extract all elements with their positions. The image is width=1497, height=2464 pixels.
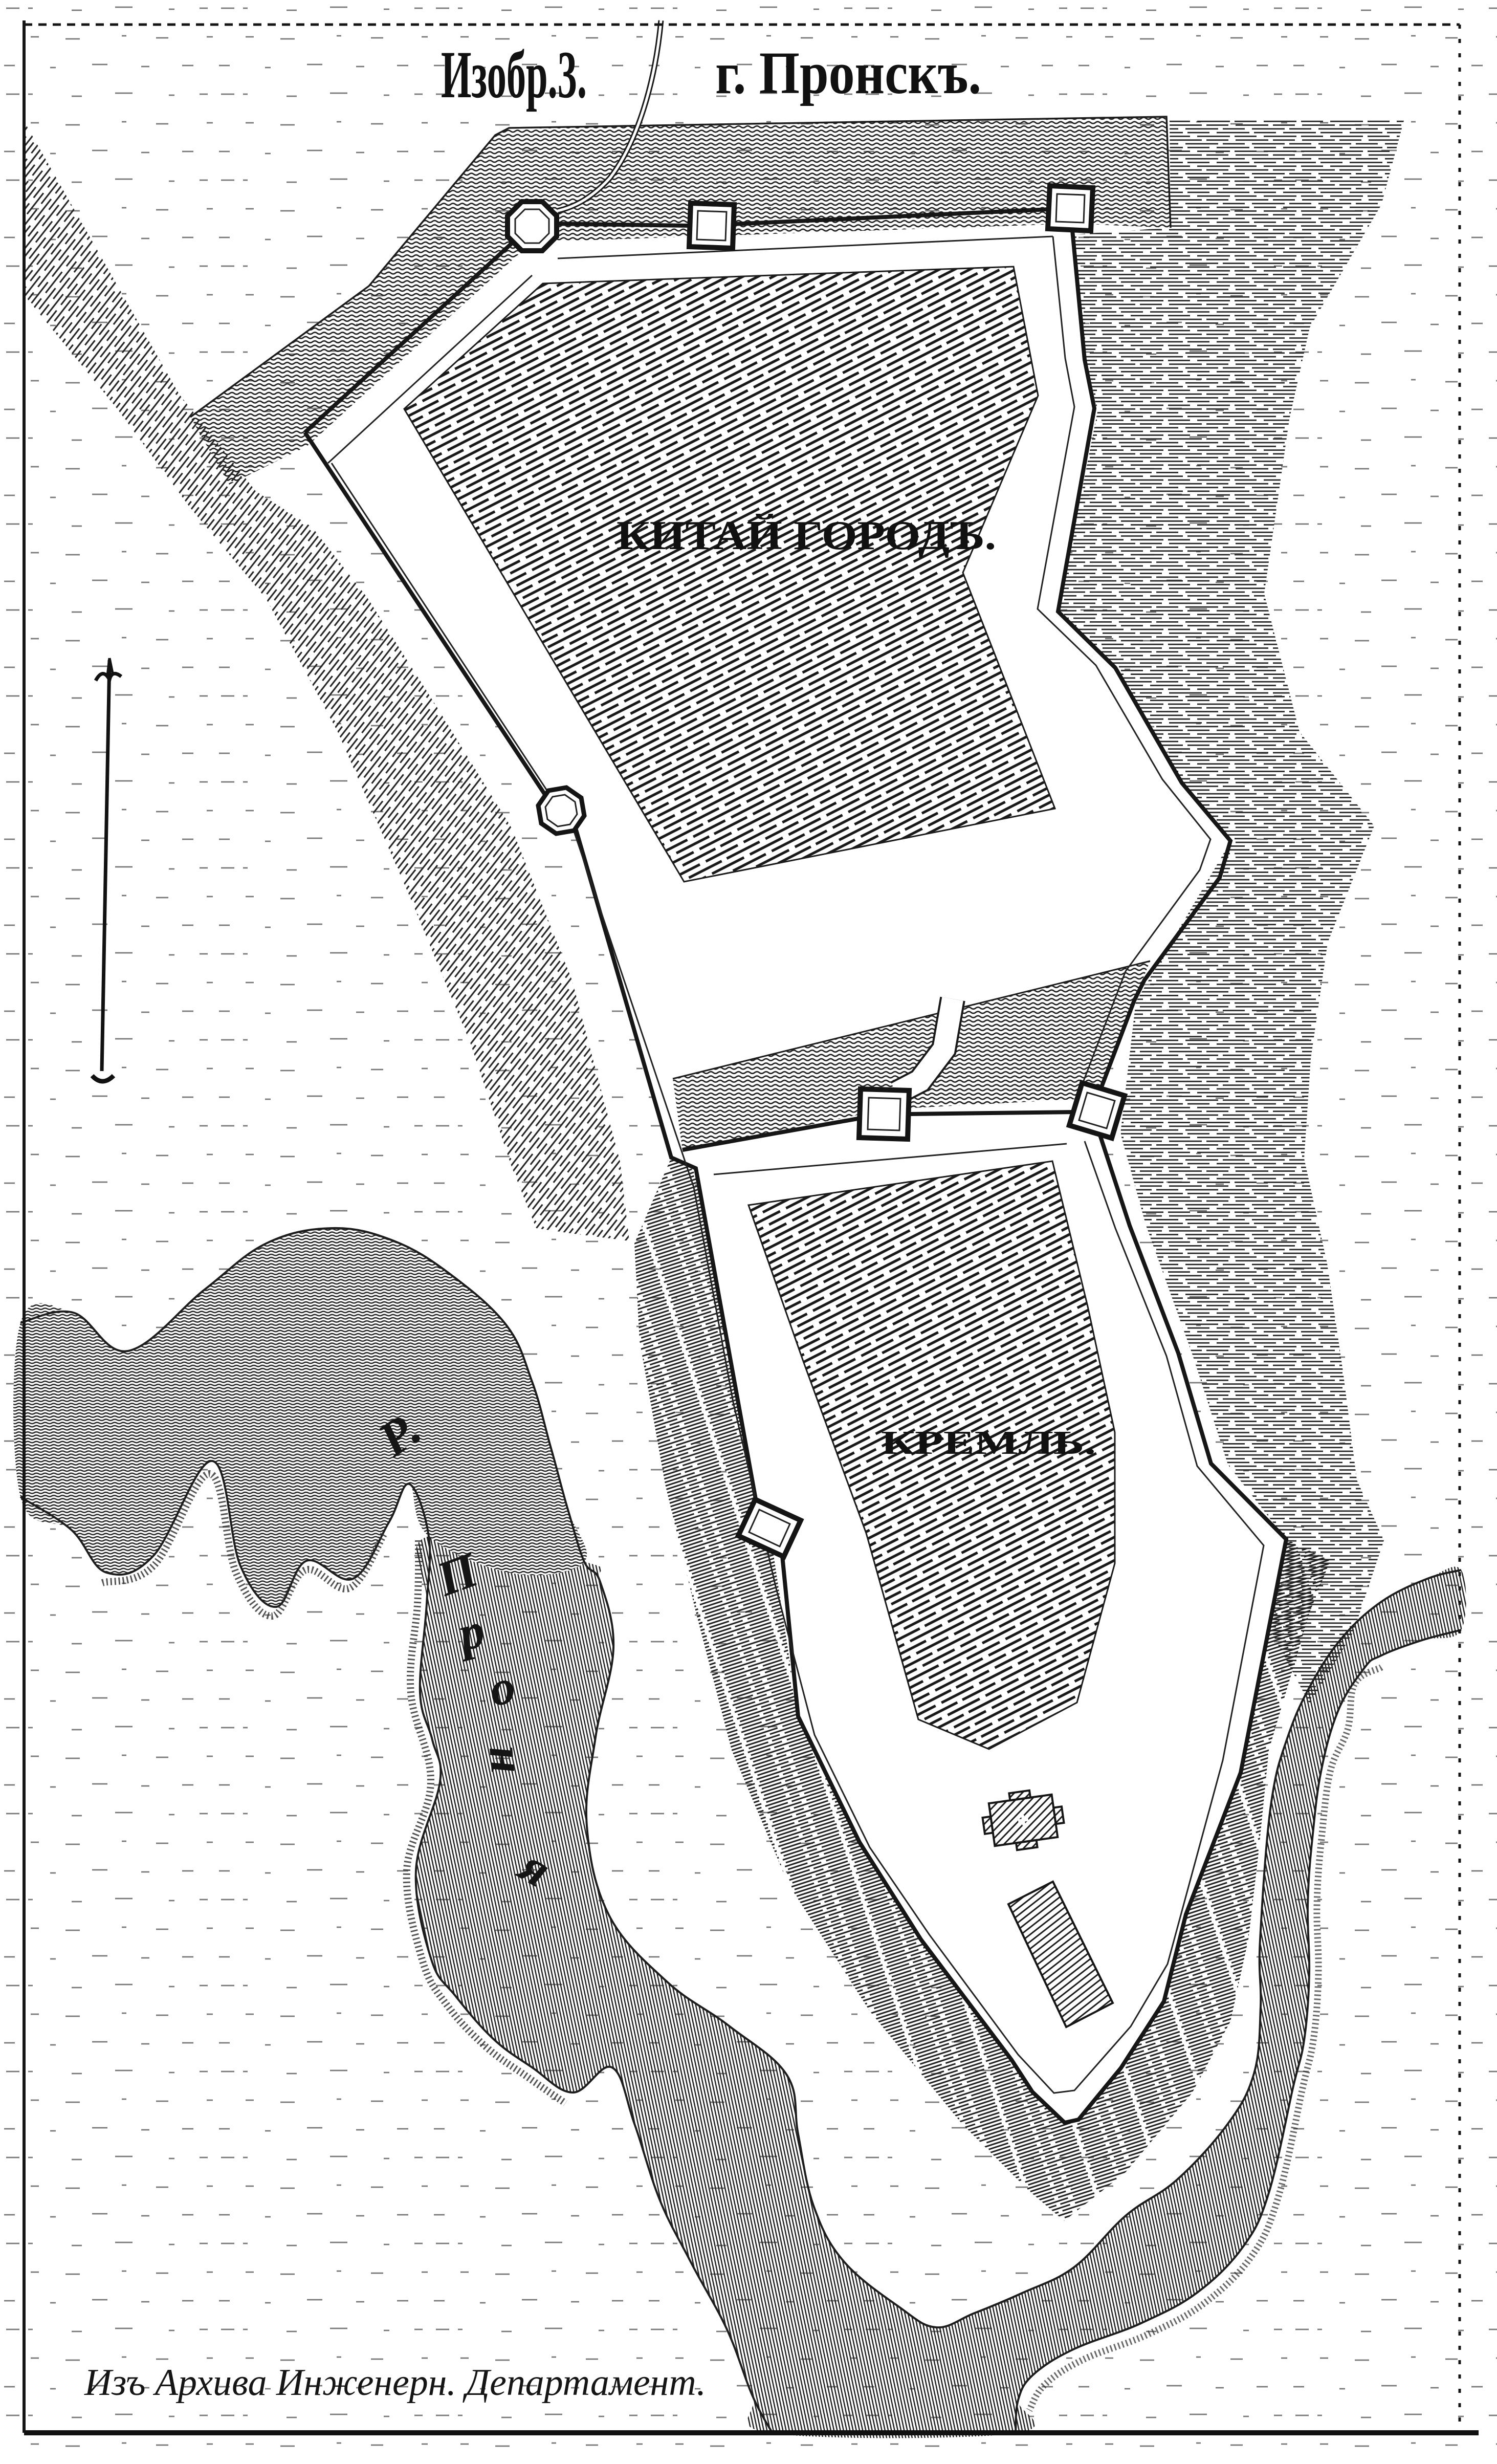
svg-text:г. Пронскъ.: г. Пронскъ. [715,39,981,106]
svg-text:Изобр.3.: Изобр.3. [441,37,587,112]
svg-text:Изъ Архива Инженерн. Департа: Изъ Архива Инженерн. Департамент. [84,2362,706,2404]
svg-text:н: н [479,1743,536,1775]
svg-text:КИТАЙ ГОРОДЪ.: КИТАЙ ГОРОДЪ. [617,513,996,558]
svg-text:КРЕМЛЬ.: КРЕМЛЬ. [881,1424,1096,1462]
